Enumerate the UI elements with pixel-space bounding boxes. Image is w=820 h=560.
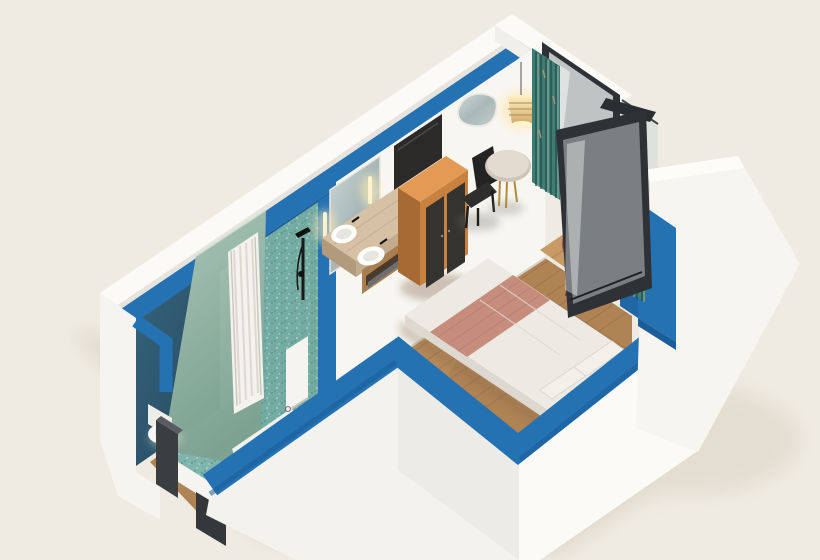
floorplan-render — [0, 0, 820, 560]
balcony-door-open — [556, 98, 656, 318]
wardrobe-door — [426, 196, 444, 288]
isometric-room-svg — [0, 0, 820, 560]
curtain-left — [532, 48, 560, 200]
shower-curtain — [228, 232, 264, 414]
